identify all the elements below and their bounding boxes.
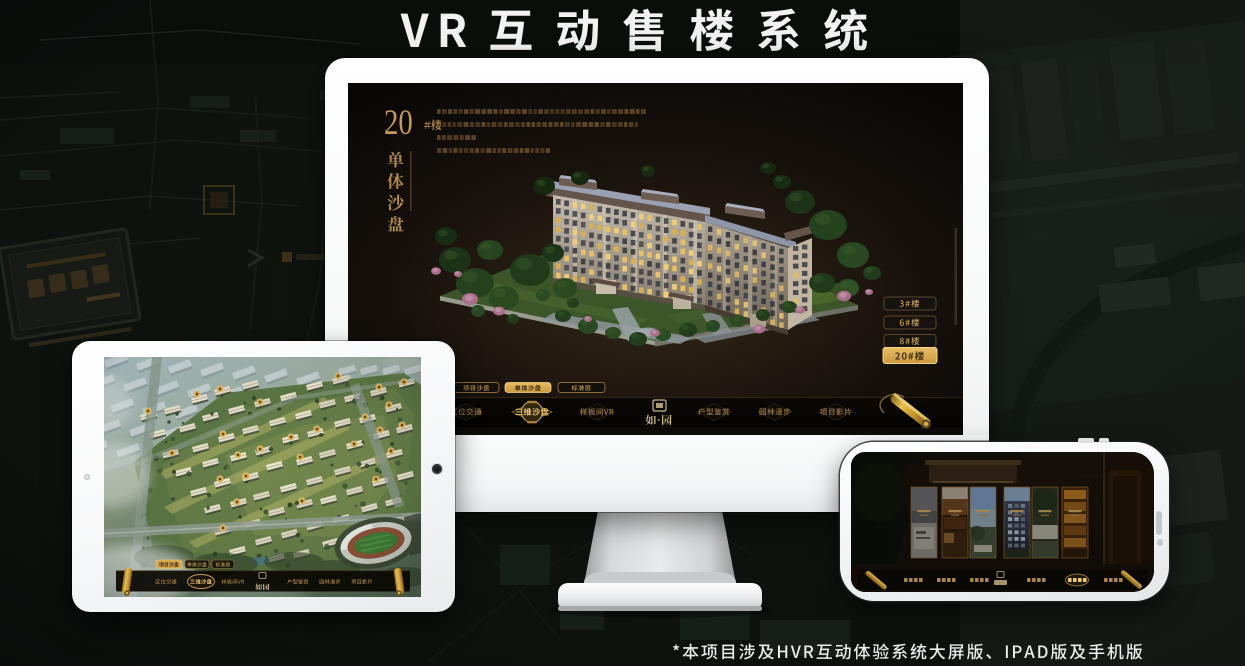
- svg-text:20: 20: [384, 103, 413, 143]
